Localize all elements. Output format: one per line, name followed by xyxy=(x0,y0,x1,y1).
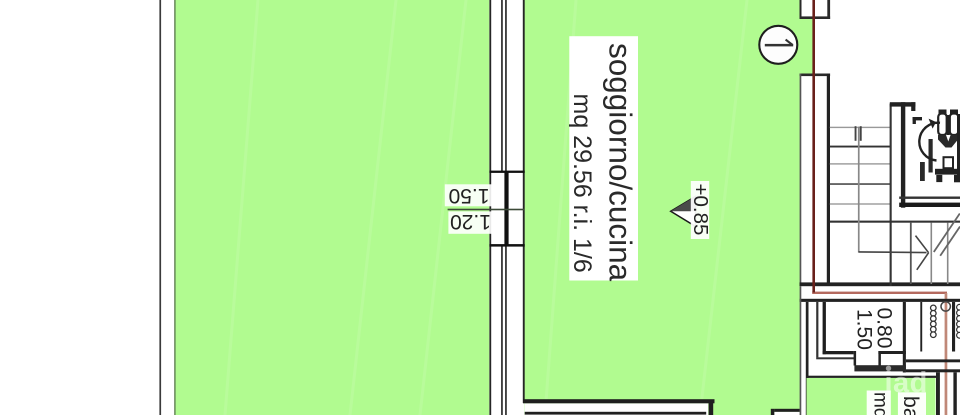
svg-text:soggiorno/cucina: soggiorno/cucina xyxy=(603,43,639,282)
svg-text:+0.85: +0.85 xyxy=(689,184,712,236)
svg-text:1.20: 1.20 xyxy=(450,210,491,233)
svg-text:iad: iad xyxy=(885,367,928,399)
svg-text:1.50: 1.50 xyxy=(853,309,876,350)
svg-text:1.50: 1.50 xyxy=(449,184,490,207)
svg-text:mq 29.56 r.i. 1/6: mq 29.56 r.i. 1/6 xyxy=(568,94,596,273)
